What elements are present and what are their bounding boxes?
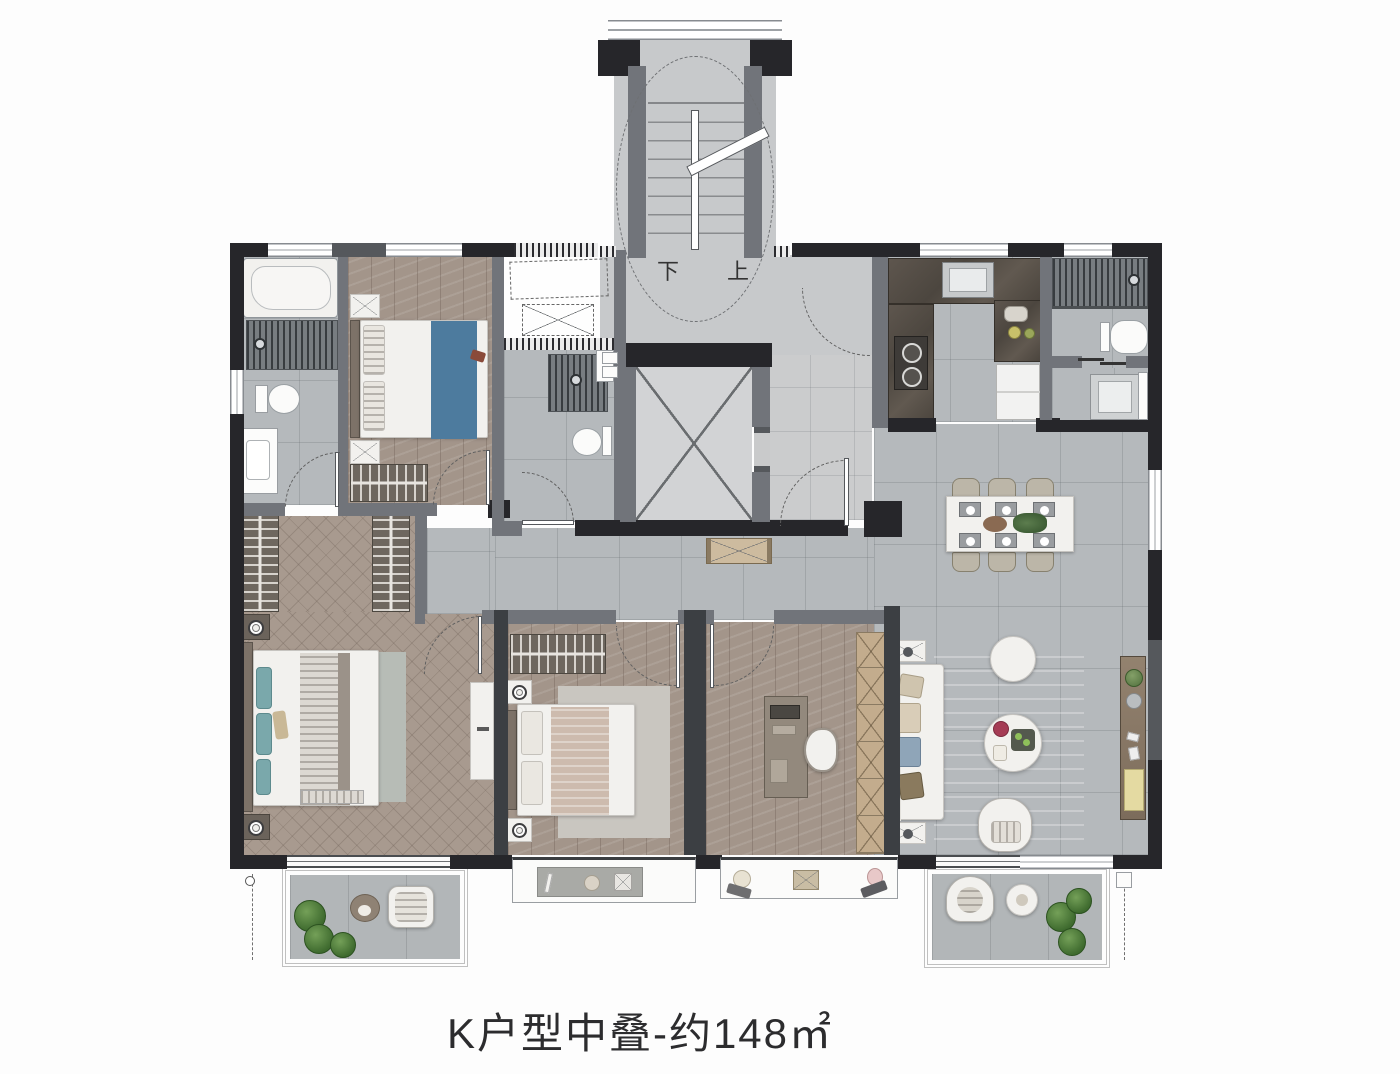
floor-plan-page: 下 上 bbox=[0, 0, 1400, 1074]
dining-chair bbox=[1026, 478, 1054, 498]
master-nightstand-top bbox=[240, 614, 270, 640]
console-plant-icon bbox=[1125, 669, 1143, 687]
corridor-floor bbox=[495, 528, 880, 620]
bed1-headboard bbox=[350, 320, 360, 438]
wall-elevator-top bbox=[626, 343, 772, 367]
monitor-icon bbox=[770, 705, 800, 719]
vanity1-sink bbox=[246, 440, 270, 480]
balcony-plant-icon bbox=[330, 932, 356, 958]
window-top-bed1 bbox=[386, 243, 462, 257]
toilet3-tank bbox=[1100, 322, 1110, 352]
study-door bbox=[710, 624, 714, 688]
tv-console bbox=[1120, 656, 1146, 820]
balcony-pouf bbox=[350, 894, 380, 922]
placemat bbox=[995, 533, 1017, 548]
window-top-kitchen bbox=[920, 243, 1008, 257]
stair-hatch-right bbox=[774, 246, 790, 257]
sliding-door-mark bbox=[1078, 358, 1104, 361]
bed2-headboard bbox=[507, 710, 517, 810]
bath1-door bbox=[335, 452, 339, 507]
decor-box-icon bbox=[614, 873, 632, 891]
placemat bbox=[959, 502, 981, 517]
master-throw-pillow bbox=[272, 710, 289, 740]
survey-point-icon bbox=[245, 876, 255, 886]
toilet1-bowl bbox=[268, 384, 300, 414]
master-nightstand-bottom bbox=[240, 814, 270, 840]
wall-platform-bath2-hatch bbox=[504, 338, 616, 350]
bathtub bbox=[243, 258, 338, 318]
lounge-cushion bbox=[395, 892, 427, 922]
keyboard-icon bbox=[772, 725, 796, 735]
kitchen-jar-icon bbox=[1024, 328, 1035, 339]
shower3-glass bbox=[1052, 306, 1148, 309]
stairwell-top-window bbox=[608, 20, 782, 40]
sofa-pillow bbox=[897, 771, 924, 800]
plate-icon bbox=[966, 506, 975, 515]
bedroom2-wardrobe bbox=[510, 634, 606, 674]
toilet3-bowl bbox=[1110, 320, 1148, 354]
study-desk bbox=[764, 696, 808, 798]
bay-window-bed2 bbox=[512, 857, 696, 903]
drain-box-icon bbox=[1116, 872, 1132, 888]
balcony-lounge-chair bbox=[388, 886, 434, 928]
window-bottom-living bbox=[1020, 855, 1113, 869]
equipment-platform-xbox bbox=[522, 304, 594, 336]
kitchen-sink bbox=[942, 262, 994, 298]
wall-left bbox=[230, 243, 244, 370]
decor-vase-icon bbox=[544, 873, 553, 894]
kitchen-sink-basin bbox=[949, 268, 987, 292]
wall-bed1-bath2 bbox=[492, 250, 504, 534]
stair-up-label: 上 bbox=[716, 254, 760, 286]
wall-kitchen-bath3 bbox=[1040, 250, 1052, 370]
master-duvet-fold bbox=[338, 653, 350, 805]
pouf-tray-icon bbox=[358, 905, 371, 916]
balcony-chair-cushion bbox=[957, 887, 983, 913]
wall-study-top-stub bbox=[706, 610, 714, 624]
entry-doormat bbox=[706, 538, 772, 564]
speaker-icon bbox=[903, 647, 913, 657]
kitchen-jar-icon bbox=[1008, 326, 1021, 339]
toilet1-tank bbox=[255, 385, 268, 413]
wall-top bbox=[792, 243, 920, 257]
bay-runner bbox=[537, 867, 643, 897]
wall-bottom bbox=[230, 855, 287, 869]
burner-icon bbox=[902, 343, 922, 363]
dining-chair bbox=[1026, 552, 1054, 572]
wall-bottom bbox=[898, 855, 936, 869]
lamp-icon bbox=[512, 823, 527, 838]
wall-bottom bbox=[1113, 855, 1162, 869]
balcony-table bbox=[1006, 884, 1038, 916]
nightstand-decor-icon bbox=[353, 297, 377, 315]
master-bed-footer-runner bbox=[300, 790, 364, 804]
wall-closet-corridor bbox=[415, 503, 427, 614]
entry-door bbox=[844, 458, 849, 526]
closet-wardrobe-right bbox=[372, 508, 410, 612]
cooktop bbox=[894, 336, 928, 390]
plate-icon bbox=[1040, 537, 1049, 546]
desk-chair bbox=[804, 728, 838, 772]
table-decor-icon bbox=[1016, 894, 1028, 906]
bedroom1-wardrobe bbox=[350, 464, 428, 502]
table-plant-icon bbox=[1013, 513, 1047, 533]
remote-icon bbox=[1126, 732, 1140, 743]
wall-right bbox=[1148, 243, 1162, 470]
desk-tray bbox=[770, 759, 788, 783]
bed2-nightstand-top bbox=[506, 680, 532, 704]
stair-stringer bbox=[691, 110, 699, 250]
balcony-chair bbox=[946, 876, 994, 922]
sofa-pillow bbox=[897, 703, 921, 733]
wall-kitchen-hall bbox=[872, 250, 888, 428]
master-pillow bbox=[256, 667, 272, 709]
decor-plate-icon bbox=[584, 875, 600, 891]
bed1-door bbox=[486, 450, 490, 505]
master-dresser bbox=[470, 682, 494, 780]
armchair bbox=[978, 798, 1032, 852]
wall-kitchen-bottom-left bbox=[888, 418, 936, 432]
sofa-pillow bbox=[897, 737, 921, 767]
wall-top bbox=[462, 243, 514, 257]
column-entry bbox=[864, 501, 902, 537]
window-top-bath1 bbox=[268, 243, 332, 257]
fruit-icon bbox=[1015, 733, 1022, 740]
plan-title: K户型中叠-约148㎡ bbox=[230, 1000, 1050, 1061]
kitchen-tray bbox=[1004, 306, 1028, 322]
wall-bed2-study bbox=[684, 610, 706, 855]
bathtub-basin bbox=[251, 266, 331, 310]
wall-bath2-bottom-left bbox=[492, 521, 522, 536]
wall-bottom bbox=[450, 855, 512, 869]
dining-chair bbox=[952, 478, 980, 498]
master-pillow bbox=[256, 759, 271, 795]
bed2-pillow bbox=[521, 761, 543, 805]
vanity3-counter bbox=[1090, 374, 1140, 420]
bed2-pillow bbox=[521, 711, 543, 755]
lamp-icon bbox=[248, 620, 264, 636]
bed2-nightstand-bottom bbox=[506, 818, 532, 842]
master-pillow bbox=[256, 713, 272, 755]
bed1-runner bbox=[431, 321, 477, 439]
master-door bbox=[478, 616, 482, 674]
nightstand-decor-icon bbox=[353, 443, 377, 461]
shower-head-icon bbox=[254, 338, 266, 350]
sliding-door-mark bbox=[1100, 362, 1126, 365]
property-line-left bbox=[252, 874, 254, 960]
window-top-bath3 bbox=[1064, 243, 1112, 257]
wall-top-pier bbox=[332, 243, 386, 257]
corridor-west-floor bbox=[427, 528, 495, 614]
bed1-pillow bbox=[363, 381, 385, 431]
window-left-bath1 bbox=[230, 370, 244, 414]
vanity3-shelf bbox=[1138, 372, 1148, 420]
console-box bbox=[1124, 769, 1144, 811]
elevator-door bbox=[754, 427, 770, 472]
armchair-pillow bbox=[991, 821, 1021, 843]
closet-wardrobe-left bbox=[241, 508, 279, 612]
wall-top-platform-hatch bbox=[514, 243, 598, 257]
bay-window-study bbox=[720, 857, 898, 899]
bed1-nightstand-top bbox=[350, 294, 380, 318]
bath2-door bbox=[522, 520, 574, 525]
wall-bath3-bottom bbox=[1046, 356, 1082, 368]
wall-right bbox=[1148, 760, 1162, 869]
coffee-tray bbox=[1011, 729, 1035, 751]
shower-head-icon bbox=[1128, 274, 1140, 286]
shower-head-icon bbox=[570, 374, 582, 386]
wall-elevator-right-bottom bbox=[752, 472, 770, 522]
window-right-dining bbox=[1148, 470, 1162, 550]
wall-bottom-pier bbox=[696, 855, 722, 869]
lamp-icon bbox=[512, 685, 527, 700]
sliding-door-living-balcony bbox=[936, 855, 1020, 868]
plate-icon bbox=[1002, 537, 1011, 546]
wall-elevator-right-top bbox=[752, 367, 770, 427]
stair-down-label: 下 bbox=[646, 254, 690, 286]
wall-elevator-left bbox=[620, 367, 636, 522]
dining-chair bbox=[988, 478, 1016, 498]
sliding-door-master-balcony bbox=[287, 855, 450, 868]
refrigerator bbox=[996, 364, 1040, 420]
bed1-pillow bbox=[363, 325, 385, 375]
study-bookshelf bbox=[856, 632, 886, 854]
dish-icon bbox=[983, 516, 1007, 532]
sofa-pillow bbox=[897, 673, 924, 699]
stair-landing-line bbox=[648, 102, 744, 104]
round-side-table bbox=[990, 636, 1036, 682]
placemat bbox=[959, 533, 981, 548]
stair-hatch-left bbox=[600, 246, 616, 257]
lamp-icon bbox=[248, 820, 264, 836]
bed2-blanket bbox=[551, 707, 609, 815]
bed1-nightstand-bottom bbox=[350, 440, 380, 464]
balcony-plant-icon bbox=[1058, 928, 1086, 956]
plate-icon bbox=[966, 537, 975, 546]
placemat bbox=[1033, 533, 1055, 548]
placemat bbox=[995, 502, 1017, 517]
candle-icon bbox=[993, 745, 1007, 761]
refrigerator-split bbox=[997, 391, 1041, 393]
wall-study-living bbox=[884, 606, 900, 855]
plate-icon bbox=[1002, 506, 1011, 515]
switch-box-icon bbox=[602, 366, 618, 378]
master-bed bbox=[253, 650, 379, 806]
wall-right bbox=[1148, 550, 1162, 640]
fruit-icon bbox=[1023, 739, 1030, 746]
console-vase-icon bbox=[1126, 693, 1142, 709]
flower-icon bbox=[993, 721, 1009, 737]
wall-master-bed2 bbox=[494, 610, 508, 855]
bay-tray-icon bbox=[793, 870, 819, 890]
dining-table bbox=[946, 496, 1074, 552]
elevator-x-icon bbox=[636, 367, 752, 520]
wall-top bbox=[1008, 243, 1064, 257]
master-duvet-striped bbox=[300, 653, 338, 805]
wall-bed2-top bbox=[508, 610, 616, 624]
wall-left bbox=[230, 414, 244, 855]
toilet2-tank bbox=[602, 426, 612, 456]
balcony-plant-icon bbox=[304, 924, 334, 954]
elevator-cab bbox=[636, 367, 752, 520]
equipment-platform-outline bbox=[509, 258, 608, 299]
switch-box-icon bbox=[602, 352, 618, 364]
balcony-plant-icon bbox=[1066, 888, 1092, 914]
bed1 bbox=[360, 320, 488, 438]
dining-chair bbox=[952, 552, 980, 572]
wall-study-top bbox=[774, 610, 884, 624]
speaker-icon bbox=[903, 829, 913, 839]
wall-right-pier bbox=[1148, 640, 1162, 760]
dresser-handle-icon bbox=[477, 727, 489, 731]
toilet2-bowl bbox=[572, 428, 602, 456]
dining-chair bbox=[988, 552, 1016, 572]
remote-icon bbox=[1128, 746, 1140, 761]
burner-icon bbox=[902, 367, 922, 387]
wall-master-door-stub bbox=[415, 610, 425, 624]
bed2 bbox=[517, 704, 635, 816]
coffee-table bbox=[984, 714, 1042, 772]
wall-bath1-bottom bbox=[237, 503, 285, 516]
bay-base-icon bbox=[860, 880, 888, 898]
bed2-door bbox=[676, 624, 680, 688]
vanity3-sink bbox=[1098, 381, 1132, 413]
wall-vanity-bottom bbox=[1040, 420, 1162, 432]
